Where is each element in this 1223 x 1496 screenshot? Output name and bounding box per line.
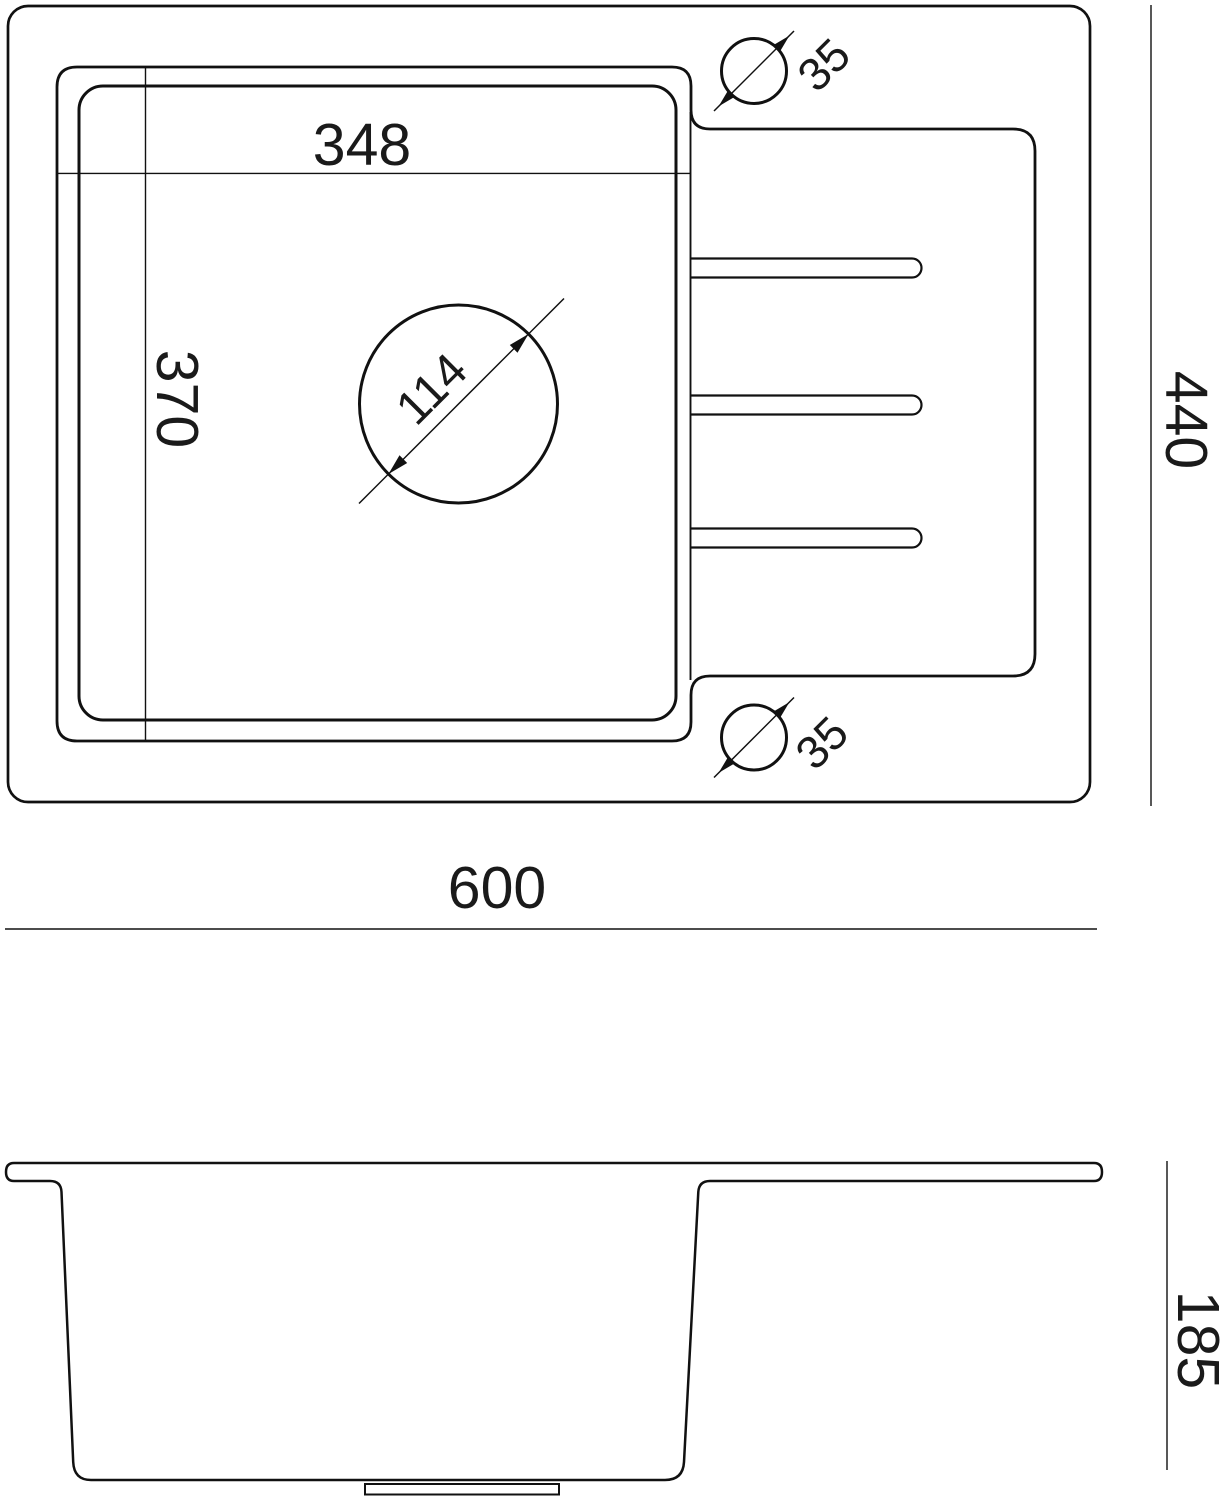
svg-text:348: 348 xyxy=(313,112,411,178)
svg-text:185: 185 xyxy=(1165,1291,1223,1389)
svg-text:440: 440 xyxy=(1153,371,1219,469)
svg-text:370: 370 xyxy=(144,350,210,448)
svg-text:600: 600 xyxy=(448,855,546,921)
